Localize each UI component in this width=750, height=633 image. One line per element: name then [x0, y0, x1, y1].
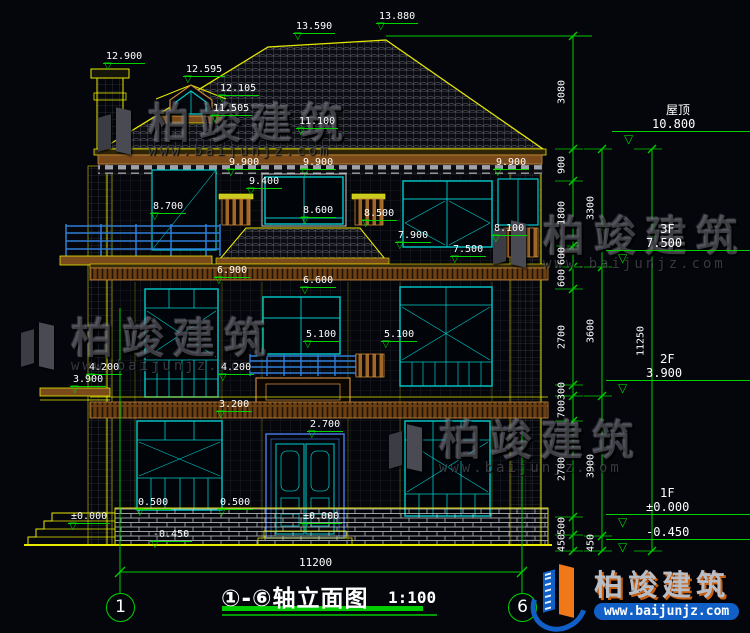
elevation-annotation: 12.900 [103, 51, 145, 64]
elevation-annotation: 6.600 [300, 275, 336, 288]
elevation-annotation: 7.900 [395, 230, 431, 243]
floor-level-marker: 1F±0.000 [606, 486, 750, 515]
elevation-annotation: 4.200 [218, 362, 254, 375]
dimension-label: 500 [557, 517, 568, 535]
dimension-label: 11250 [636, 326, 647, 356]
dimension-label: 700 [557, 400, 568, 418]
elevation-annotation: 11.100 [296, 116, 338, 129]
elevation-annotation: 8.700 [150, 201, 186, 214]
brand-logo: 柏竣建筑 www.baijunjz.com [530, 563, 739, 627]
floor-level-marker: -0.450 [606, 525, 750, 540]
elevation-annotation: 6.900 [214, 265, 250, 278]
drawing-scale: 1:100 [388, 588, 436, 607]
axis-bubble-1: 1 [106, 593, 135, 622]
overall-width-dimension: 11200 [299, 556, 332, 569]
elevation-annotation: ±0.000 [300, 511, 342, 524]
drawing-title: ①-⑥轴立面图 [221, 579, 369, 613]
elevation-annotation: 11.505 [210, 103, 252, 116]
brand-logo-icon [530, 563, 588, 627]
dimension-label: 3300 [586, 196, 597, 220]
floor-level-marker: 3F7.500 [606, 222, 750, 251]
dimension-label: 3600 [586, 319, 597, 343]
elevation-annotation: 12.105 [217, 83, 259, 96]
brand-name: 柏竣建筑 [594, 570, 730, 601]
dimension-label: 450 [586, 534, 597, 552]
elevation-annotation: -0.450 [150, 529, 192, 542]
elevation-annotation: 7.500 [450, 244, 486, 257]
elevation-annotation: 0.500 [217, 497, 253, 510]
cad-elevation-viewport: 柏竣建筑www.baijunjz.com柏竣建筑www.baijunjz.com… [0, 0, 750, 633]
dimension-label: 2700 [557, 457, 568, 481]
elevation-annotation: 8.500 [361, 208, 397, 221]
elevation-annotation: 0.500 [135, 497, 171, 510]
annotation-layer: ①-⑥轴立面图 1:100 11200 1 6 12.90013.59013.8… [0, 0, 750, 633]
elevation-annotation: ±0.000 [68, 511, 110, 524]
dimension-label: 450 [557, 534, 568, 552]
floor-level-marker: 2F3.900 [606, 352, 750, 381]
elevation-annotation: 9.900 [226, 157, 262, 170]
dimension-label: 600 [557, 247, 568, 265]
elevation-annotation: 5.100 [303, 329, 339, 342]
elevation-annotation: 9.400 [246, 176, 282, 189]
dimension-label: 2700 [557, 325, 568, 349]
elevation-annotation: 5.100 [381, 329, 417, 342]
dimension-label: 300 [557, 382, 568, 400]
dimension-label: 900 [557, 156, 568, 174]
dimension-label: 3900 [586, 454, 597, 478]
elevation-annotation: 13.880 [376, 11, 418, 24]
elevation-annotation: 8.600 [300, 205, 336, 218]
elevation-annotation: 8.100 [491, 223, 527, 236]
dimension-label: 3080 [557, 80, 568, 104]
floor-level-marker: 屋顶10.800 [612, 103, 750, 132]
dimension-label: 600 [557, 269, 568, 287]
elevation-annotation: 12.595 [183, 64, 225, 77]
dimension-label: 1800 [557, 201, 568, 225]
elevation-annotation: 13.590 [293, 21, 335, 34]
elevation-annotation: 9.900 [300, 157, 336, 170]
elevation-annotation: 9.900 [493, 157, 529, 170]
brand-url: www.baijunjz.com [594, 603, 739, 620]
elevation-annotation: 2.700 [307, 419, 343, 432]
elevation-annotation: 3.900 [70, 374, 106, 387]
elevation-annotation: 3.200 [216, 399, 252, 412]
